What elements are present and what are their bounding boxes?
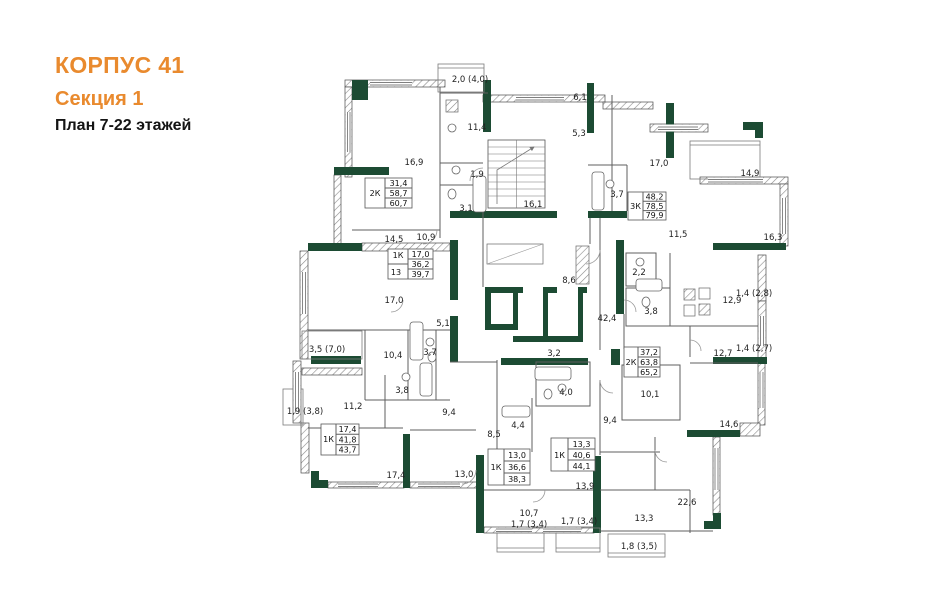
apt-area: 36,2 [412,260,430,269]
room-area-label: 14,9 [741,169,760,179]
room-area-label: 5,3 [572,129,586,139]
room-area-label: 13,9 [576,482,595,492]
room-area-label: 17,0 [385,296,404,306]
room-area-label: 9,4 [442,408,456,418]
apartment-table-1k-13: 1К 13 17,0 36,2 39,7 [388,249,433,279]
apt-area: 63,8 [640,358,658,367]
room-area-label: 1,7 (3,4) [511,520,547,530]
room-area-label: 11,5 [669,230,688,240]
apt-area: 37,2 [640,348,658,357]
apt-type: 2К [626,358,637,367]
apt-type: 1К [554,451,565,460]
room-area-label: 8,5 [487,430,501,440]
apt-area: 17,0 [412,250,430,259]
room-area-label: 1,4 (2,7) [736,344,772,354]
apartment-table-1k-bc2: 1К 13,3 40,6 44,1 [551,438,595,471]
room-area-label: 16,3 [764,233,783,243]
apt-type: 2К [370,189,381,198]
apt-area: 43,7 [339,446,357,455]
room-area-label: 4,0 [559,388,573,398]
room-area-label: 3,8 [395,386,409,396]
apt-area: 48,2 [646,193,664,202]
room-area-label: 1,9 (3,8) [287,407,323,417]
room-area-label: 17,4 [387,471,406,481]
room-area-label: 2,2 [632,268,646,278]
room-area-label: 42,4 [598,314,617,324]
apt-area: 79,9 [646,211,664,220]
elevator-shafts [485,287,587,342]
room-area-label: 11,4 [468,123,487,133]
apt-area: 60,7 [390,199,408,208]
room-area-label: 10,9 [417,233,436,243]
room-area-label: 6,1 [573,93,587,103]
apt-num: 13 [391,268,401,277]
room-area-label: 10,4 [384,351,403,361]
room-area-label: 10,7 [520,509,539,519]
apt-area: 41,8 [339,435,357,444]
apt-area: 13,3 [573,440,591,449]
room-area-label: 3,5 (7,0) [309,345,345,355]
apt-area: 36,6 [508,463,526,472]
room-area-label: 16,1 [524,200,543,210]
room-area-label: 8,6 [562,276,576,286]
apt-area: 40,6 [573,451,591,460]
room-area-label: 14,5 [385,235,404,245]
apt-area: 38,3 [508,475,526,484]
room-area-label: 3,8 [644,307,658,317]
room-area-label: 10,1 [641,390,660,400]
room-area-label: 1,4 (2,8) [736,289,772,299]
apartment-table-2k-mid: 2К 37,2 63,8 65,2 [624,347,660,377]
room-area-label: 13,0 [455,470,474,480]
apt-type: 1К [491,463,502,472]
room-area-label: 1,8 (3,5) [621,542,657,552]
room-area-label: 1,9 [470,170,484,180]
apt-area: 17,4 [339,425,357,434]
apartment-table-1k-bc1: 1К 13,0 36,6 38,3 [488,449,530,485]
floor-plan-page: КОРПУС 41 Секция 1 План 7-22 этажей [0,0,941,600]
room-area-label: 5,1 [436,319,450,329]
room-area-label: 16,9 [405,158,424,168]
room-area-label: 12,7 [714,349,733,359]
apt-area: 65,2 [640,368,658,377]
apt-area: 31,4 [390,179,408,188]
staircase [488,140,545,208]
bath-kitchen-fixtures [402,100,710,417]
apt-area: 44,1 [573,462,591,471]
room-area-label: 2,0 (4,0) [452,75,488,85]
room-area-label: 3,7 [423,348,437,358]
apt-type: 3К [630,202,641,211]
room-area-label: 22,6 [678,498,697,508]
room-area-label: 13,3 [635,514,654,524]
floor-plan-drawing: 2К 31,4 58,7 60,7 1К 13 17,0 36,2 39,7 3… [0,0,941,600]
apt-type: 1К [393,251,404,260]
room-area-label: 17,0 [650,159,669,169]
apt-type: 1К [323,435,334,444]
apt-area: 13,0 [508,451,526,460]
apartment-table-3k: 3К 48,2 78,5 79,9 [628,192,666,220]
room-area-label: 1,7 (3,4) [561,517,597,527]
apartment-table-1k-bl: 1К 17,4 41,8 43,7 [321,424,359,455]
apartment-table-2k-top: 2К 31,4 58,7 60,7 [365,178,412,208]
apt-area: 39,7 [412,270,430,279]
room-area-label: 4,4 [511,421,525,431]
room-area-label: 14,6 [720,420,739,430]
apt-area: 78,5 [646,202,664,211]
room-area-label: 3,1 [459,204,473,214]
room-area-label: 11,2 [344,402,363,412]
apt-area: 58,7 [390,189,408,198]
room-area-label: 3,2 [547,349,561,359]
room-area-label: 9,4 [603,416,617,426]
room-area-label: 3,7 [610,190,624,200]
